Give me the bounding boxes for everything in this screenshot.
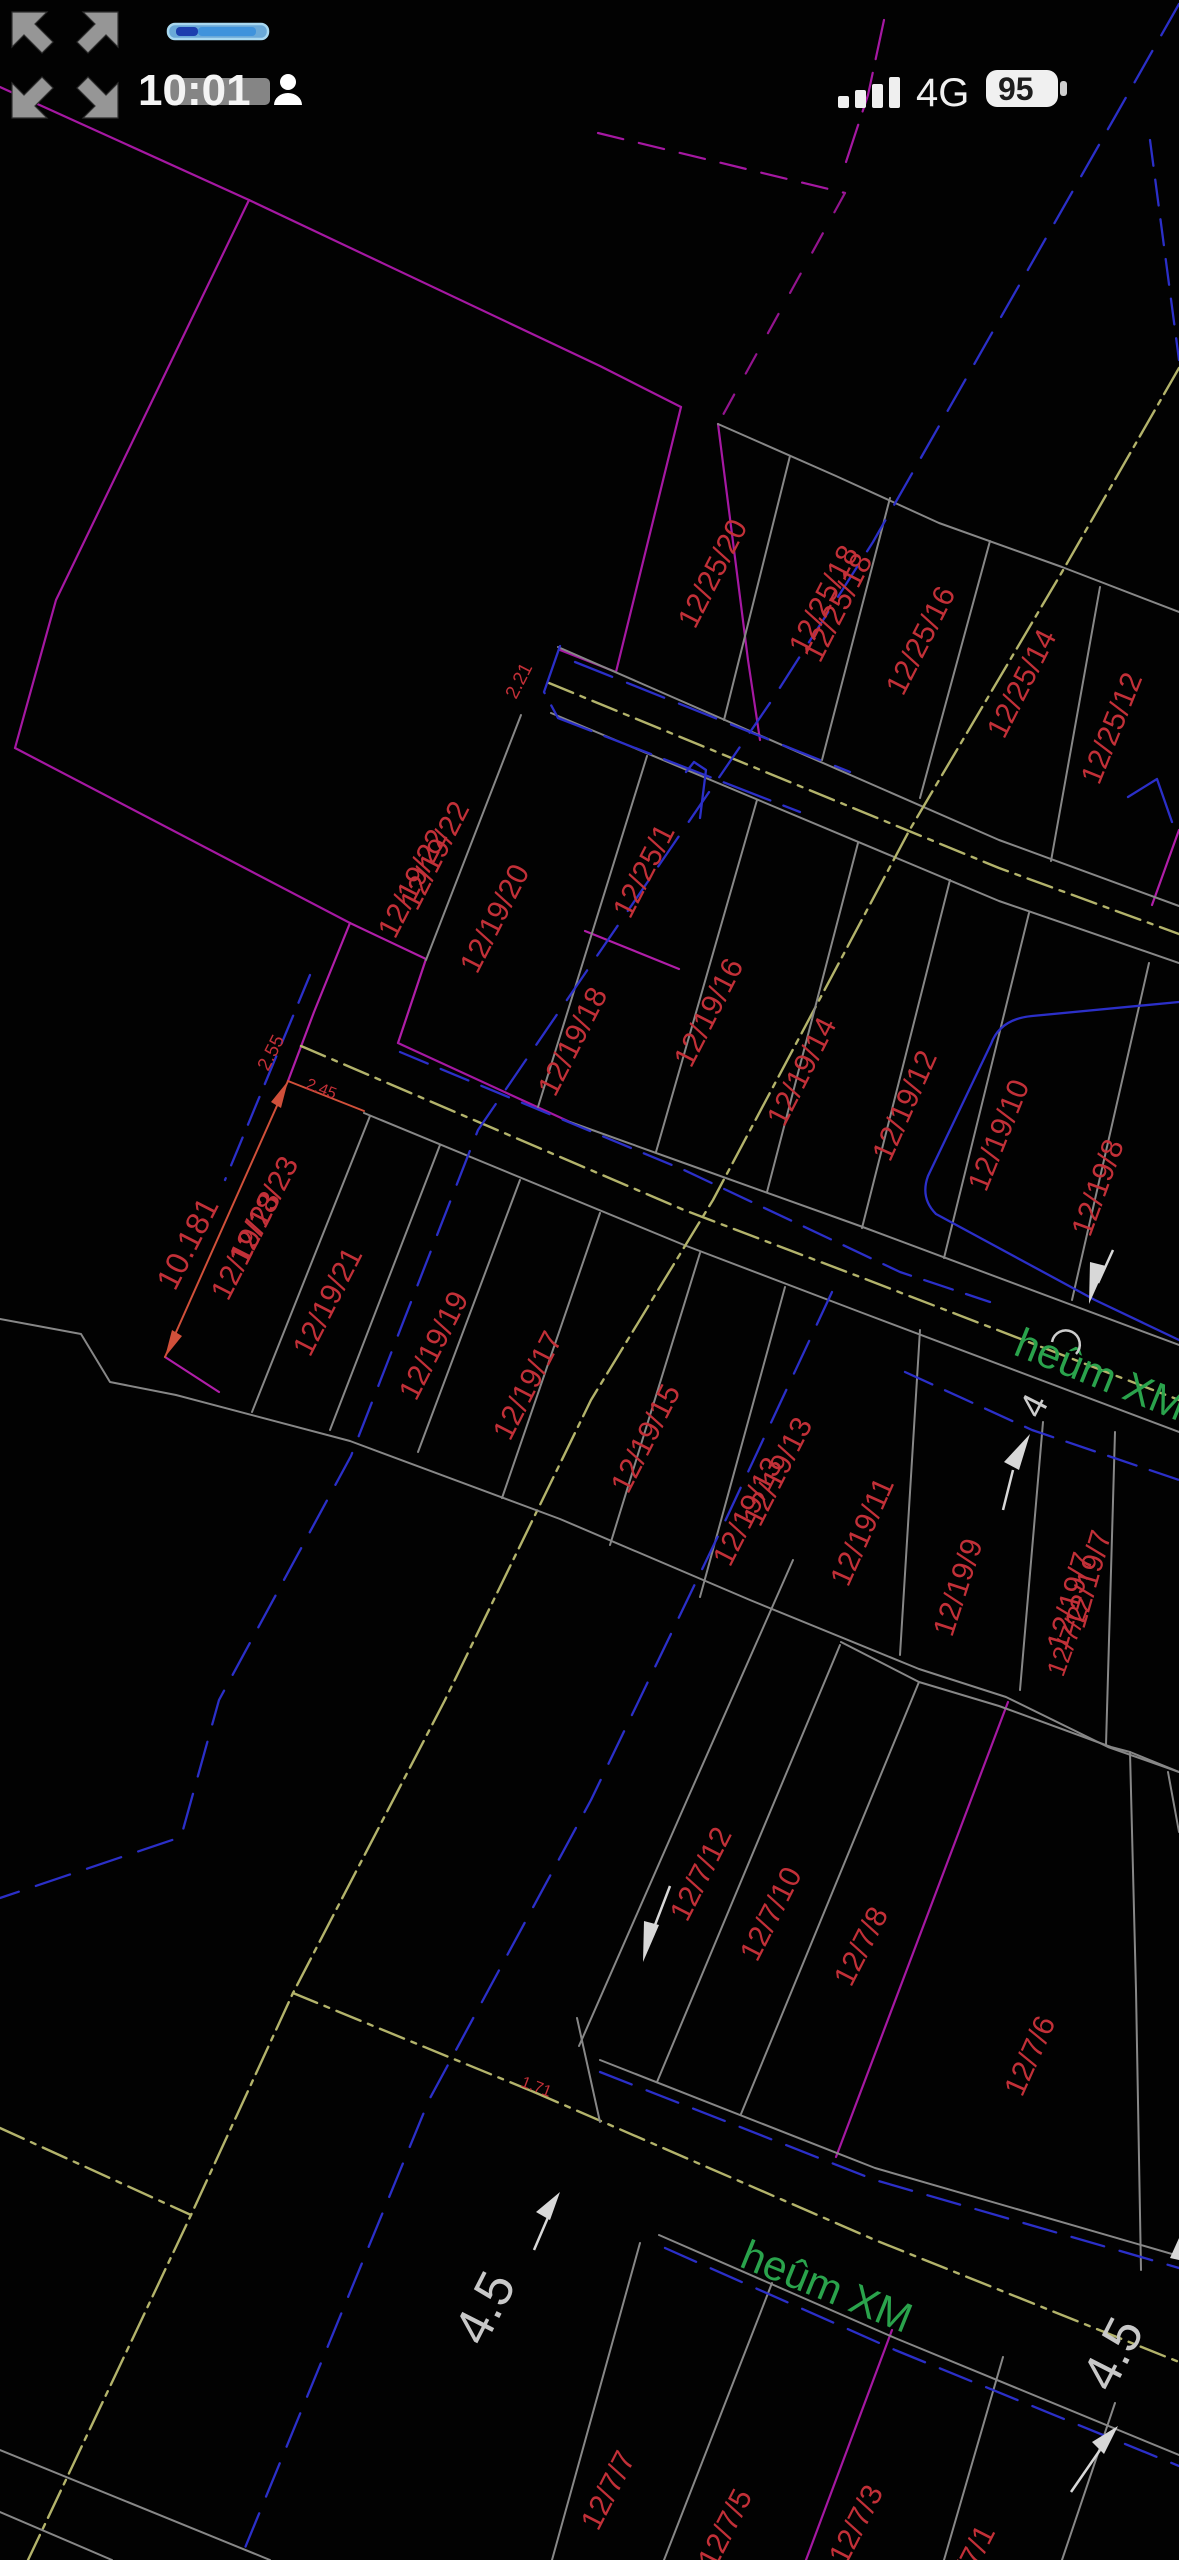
svg-text:95: 95 xyxy=(998,71,1034,107)
svg-text:10:01: 10:01 xyxy=(138,66,251,115)
svg-text:4G: 4G xyxy=(916,71,969,115)
